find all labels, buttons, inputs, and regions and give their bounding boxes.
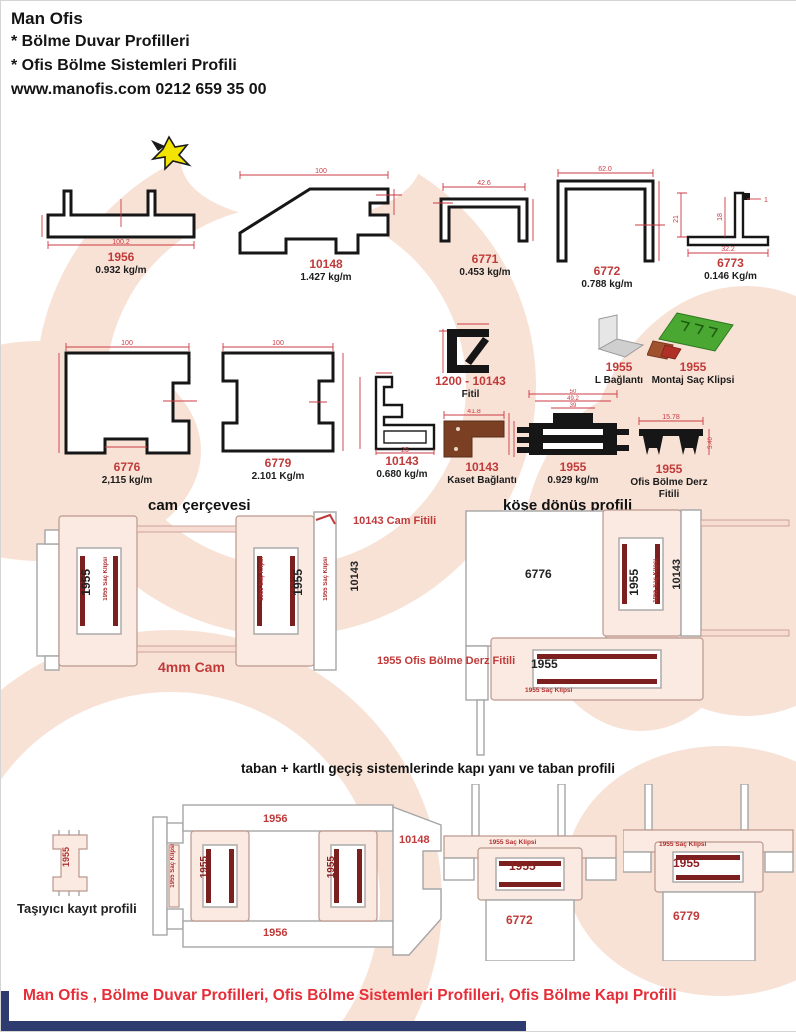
- assembly-label-1955: 1955: [61, 847, 71, 867]
- profile-drawing-10148: 100: [226, 163, 426, 258]
- profile-code: 6773: [717, 257, 744, 271]
- svg-text:1: 1: [764, 197, 768, 204]
- assembly-label-1955: 1955: [291, 569, 305, 596]
- profile-code: 10148: [309, 258, 342, 272]
- profile-drawing-6779: 100: [203, 339, 353, 457]
- profile-drawing-fitil: [413, 319, 528, 375]
- profile-name: L Bağlantı: [595, 375, 643, 387]
- profile-card-l-baglanti: 1955 L Bağlantı: [583, 313, 655, 387]
- profile-card-10148: 100 10148 1.427 kg/m: [226, 163, 426, 284]
- base-assembly-6779-drawing: [623, 784, 796, 961]
- header-product-line-2: * Ofis Bölme Sistemleri Profili: [11, 57, 237, 75]
- profile-code: 6779: [265, 457, 292, 471]
- assembly-label-1956: 1956: [263, 813, 287, 825]
- assembly-label-sac-klipsi: 1955 Saç Klipsi: [525, 687, 572, 694]
- carrier-profile-label: Taşıyıcı kayıt profili: [17, 901, 137, 916]
- assembly-label-4mm-cam: 4mm Cam: [158, 659, 225, 675]
- assembly-label-sac-klipsi: 1955 Saç Klipsi: [489, 839, 536, 846]
- door-side-assembly-drawing: [151, 793, 446, 963]
- svg-text:100.2: 100.2: [112, 239, 130, 246]
- svg-text:41.8: 41.8: [467, 409, 481, 415]
- l-bracket-drawing: [583, 313, 655, 361]
- profile-card-6776: 100 6776 2,115 kg/m: [51, 339, 203, 487]
- header-contact: www.manofis.com 0212 659 35 00: [11, 81, 267, 99]
- profile-code: 1955: [680, 361, 707, 375]
- profile-name: Ofis Bölme Derz Fitili: [623, 477, 715, 501]
- glass-frame-assembly-drawing: [31, 506, 381, 711]
- svg-text:25: 25: [401, 447, 409, 454]
- assembly-label-sac-klipsi: 1955 Saç Klipsi: [259, 557, 265, 601]
- svg-text:62.0: 62.0: [598, 166, 612, 173]
- company-title: Man Ofis: [11, 9, 83, 29]
- header-product-line-1: * Bölme Duvar Profilleri: [11, 33, 190, 51]
- profile-weight: 0.788 kg/m: [581, 279, 632, 291]
- profile-card-1956: 100.2 1956 0.932 kg/m: [36, 171, 206, 277]
- svg-text:100: 100: [121, 340, 133, 347]
- assembly-label-1955: 1955: [79, 569, 93, 596]
- svg-text:42.6: 42.6: [477, 180, 491, 187]
- profile-card-derz-fitili: 15.78 5.40 1955 Ofis Bölme Derz Fitili: [623, 413, 715, 501]
- svg-text:5.40: 5.40: [708, 437, 714, 449]
- derz-gasket-drawing: 15.78 5.40: [623, 413, 715, 463]
- profile-card-6779: 100 6779 2.101 Kg/m: [203, 339, 353, 483]
- svg-text:18: 18: [717, 213, 724, 221]
- assembly-label-1955: 1955: [326, 856, 337, 878]
- profile-code: 1955: [656, 463, 683, 477]
- profile-name: Montaj Saç Klipsi: [652, 375, 735, 387]
- profile-code: 6771: [472, 253, 499, 267]
- catalog-page: Man Ofis * Bölme Duvar Profilleri * Ofis…: [0, 0, 796, 1032]
- profile-weight: 0.929 kg/m: [547, 475, 598, 487]
- profile-weight: 0.146 Kg/m: [704, 271, 757, 283]
- assembly-label-6772: 6772: [506, 913, 533, 927]
- profile-weight: 2.101 Kg/m: [252, 471, 305, 483]
- profile-weight: 1.427 kg/m: [300, 272, 351, 284]
- assembly-label-6776: 6776: [525, 567, 552, 581]
- footer-text: Man Ofis , Bölme Duvar Profilleri, Ofis …: [23, 987, 677, 1005]
- assembly-label-cam-fitili: 10143 Cam Fitili: [353, 515, 436, 527]
- assembly-label-sac-klipsi: 1955 Saç Klipsi: [103, 557, 109, 601]
- svg-text:39: 39: [570, 403, 577, 409]
- profile-name: Fitil: [462, 389, 480, 401]
- profile-code: 6776: [114, 461, 141, 475]
- star-icon: [143, 135, 195, 171]
- profile-drawing-6776: 100: [51, 339, 203, 461]
- assembly-label-sac-klipsi: 1955 Saç Klipsi: [659, 841, 706, 848]
- assembly-label-10143: 10143: [349, 561, 361, 592]
- profile-weight: 2,115 kg/m: [102, 475, 153, 487]
- profile-code: 10143: [385, 455, 418, 469]
- assembly-label-1956: 1956: [263, 927, 287, 939]
- svg-text:21: 21: [673, 215, 680, 223]
- assembly-label-sac-klipsi: 1955 Saç Klipsi: [323, 557, 329, 601]
- profile-code: 6772: [594, 265, 621, 279]
- svg-text:32.2: 32.2: [721, 246, 735, 253]
- profile-weight: 0.680 kg/m: [376, 469, 427, 481]
- svg-text:15.78: 15.78: [662, 414, 680, 421]
- profile-drawing-6771: 42.6: [429, 173, 541, 253]
- profile-code: 1955: [606, 361, 633, 375]
- assembly-label-1955: 1955: [199, 856, 210, 878]
- profile-drawing-6773: 21 18 1 32.2: [673, 179, 788, 257]
- profile-code: 10143: [465, 461, 498, 475]
- profile-card-6771: 42.6 6771 0.453 kg/m: [429, 173, 541, 279]
- assembly-label-10143: 10143: [671, 559, 683, 590]
- assembly-label-10148: 10148: [399, 834, 430, 846]
- svg-text:100: 100: [272, 340, 284, 347]
- assembly-label-1955: 1955: [509, 859, 536, 873]
- assembly-label-6779: 6779: [673, 909, 700, 923]
- profile-drawing-6772: 62.0: [543, 163, 671, 265]
- svg-text:100: 100: [315, 168, 327, 175]
- profile-card-6772: 62.0 6772 0.788 kg/m: [543, 163, 671, 291]
- profile-drawing-1956: 100.2: [36, 171, 206, 251]
- assembly-label-sac-klipsi: 1955 Saç Klipsi: [653, 559, 659, 603]
- profile-card-montaj-sac-klipsi: 1955 Montaj Saç Klipsi: [647, 309, 739, 387]
- assembly-label-1955: 1955: [531, 657, 558, 671]
- corner-assembly-drawing: [451, 504, 796, 759]
- section-title-base: taban + kartlı geçiş sistemlerinde kapı …: [241, 761, 615, 776]
- assembly-label-1955: 1955: [673, 856, 700, 870]
- svg-text:50: 50: [570, 389, 577, 395]
- profile-weight: 0.932 kg/m: [95, 265, 146, 277]
- profile-code: 1955: [560, 461, 587, 475]
- assembly-label-derz-fitili: 1955 Ofis Bölme Derz Fitili: [377, 655, 515, 667]
- svg-text:49.2: 49.2: [567, 396, 579, 402]
- profile-card-6773: 21 18 1 32.2 6773 0.146 Kg/m: [673, 179, 788, 283]
- assembly-label-1955: 1955: [627, 569, 641, 596]
- profile-weight: 0.453 kg/m: [459, 267, 510, 279]
- profile-code: 1956: [108, 251, 135, 265]
- assembly-label-sac-klipsi: 1955 Saç Klipsi: [170, 844, 176, 888]
- montaj-clip-drawing: [647, 309, 739, 361]
